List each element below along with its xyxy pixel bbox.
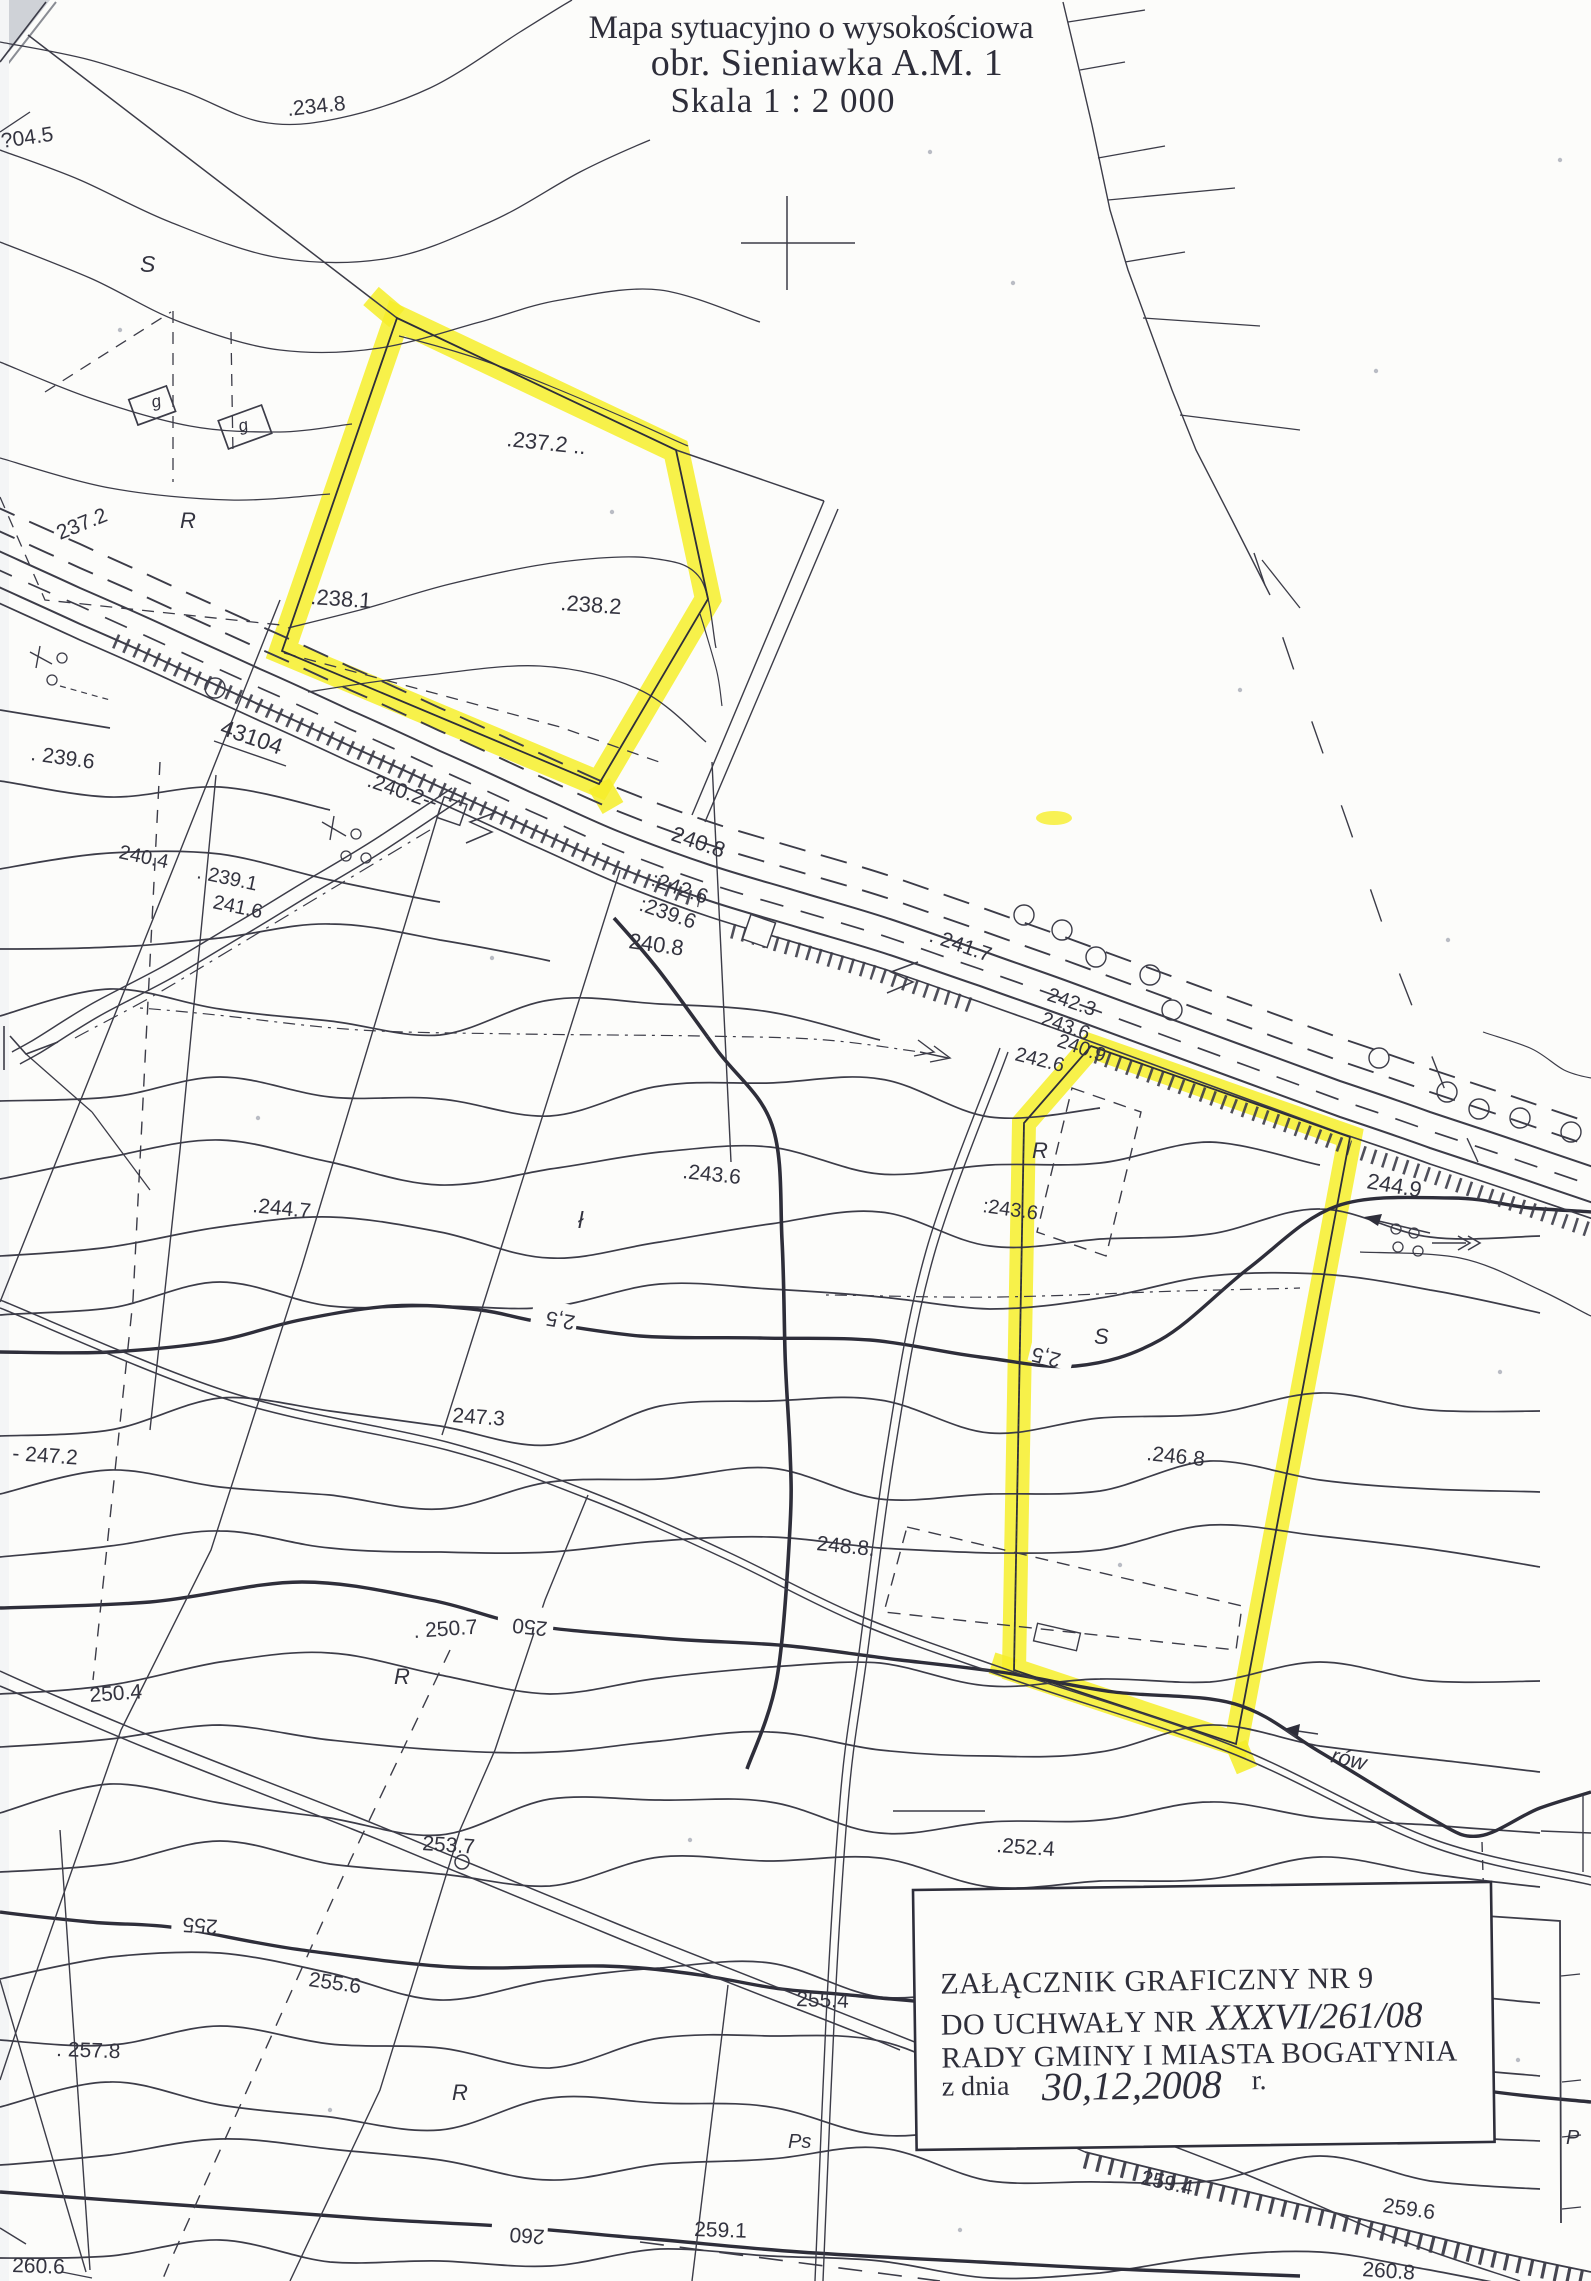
svg-text:z dnia: z dnia	[942, 2071, 1011, 2103]
svg-text:obr. Sieniawka A.M. 1: obr. Sieniawka A.M. 1	[651, 42, 1003, 84]
svg-text:30,12,2008: 30,12,2008	[1040, 2062, 1222, 2110]
svg-text:.252.4: .252.4	[996, 1834, 1056, 1861]
svg-text:P: P	[1566, 2127, 1580, 2149]
svg-text:255: 255	[182, 1913, 219, 1938]
svg-text:255.4: 255.4	[796, 1988, 850, 2013]
svg-text:R: R	[180, 508, 196, 533]
svg-text:r.: r.	[1251, 2065, 1266, 2096]
svg-text:XXXVI/261/08: XXXVI/261/08	[1205, 1995, 1424, 2039]
svg-text:Skala 1 : 2 000: Skala 1 : 2 000	[671, 81, 896, 120]
svg-text:S: S	[1094, 1324, 1109, 1349]
svg-text:R: R	[1032, 1138, 1048, 1163]
svg-text:S: S	[140, 251, 156, 277]
svg-text:DO UCHWAŁY NR: DO UCHWAŁY NR	[941, 2005, 1197, 2042]
svg-text:.238.1: .238.1	[310, 584, 373, 613]
svg-text:247.3: 247.3	[452, 1404, 506, 1431]
svg-text:250.4: 250.4	[89, 1680, 143, 1707]
svg-text:253.7: 253.7	[422, 1832, 476, 1859]
svg-text:Ps: Ps	[788, 2131, 811, 2153]
svg-text:260.8: 260.8	[1362, 2258, 1416, 2281]
svg-text:Mapa sytuacyjno o wysokościowa: Mapa sytuacyjno o wysokościowa	[589, 10, 1034, 46]
svg-text:R: R	[394, 1664, 410, 1689]
svg-text:260.6: 260.6	[12, 2254, 65, 2279]
svg-text:ł: ł	[578, 1207, 584, 1233]
svg-text:259.1: 259.1	[694, 2218, 747, 2243]
svg-text:ZAŁĄCZNIK GRAFICZNY NR 9: ZAŁĄCZNIK GRAFICZNY NR 9	[940, 1962, 1374, 2001]
svg-text:. 257.8: . 257.8	[56, 2038, 121, 2063]
svg-text:260: 260	[509, 2223, 546, 2248]
svg-text:. 250.7: . 250.7	[413, 1616, 479, 1643]
svg-text:250: 250	[511, 1613, 548, 1640]
svg-text:R: R	[452, 2080, 468, 2105]
svg-text:- 247.2: - 247.2	[12, 1442, 79, 1470]
svg-text:.238.2: .238.2	[560, 590, 623, 619]
